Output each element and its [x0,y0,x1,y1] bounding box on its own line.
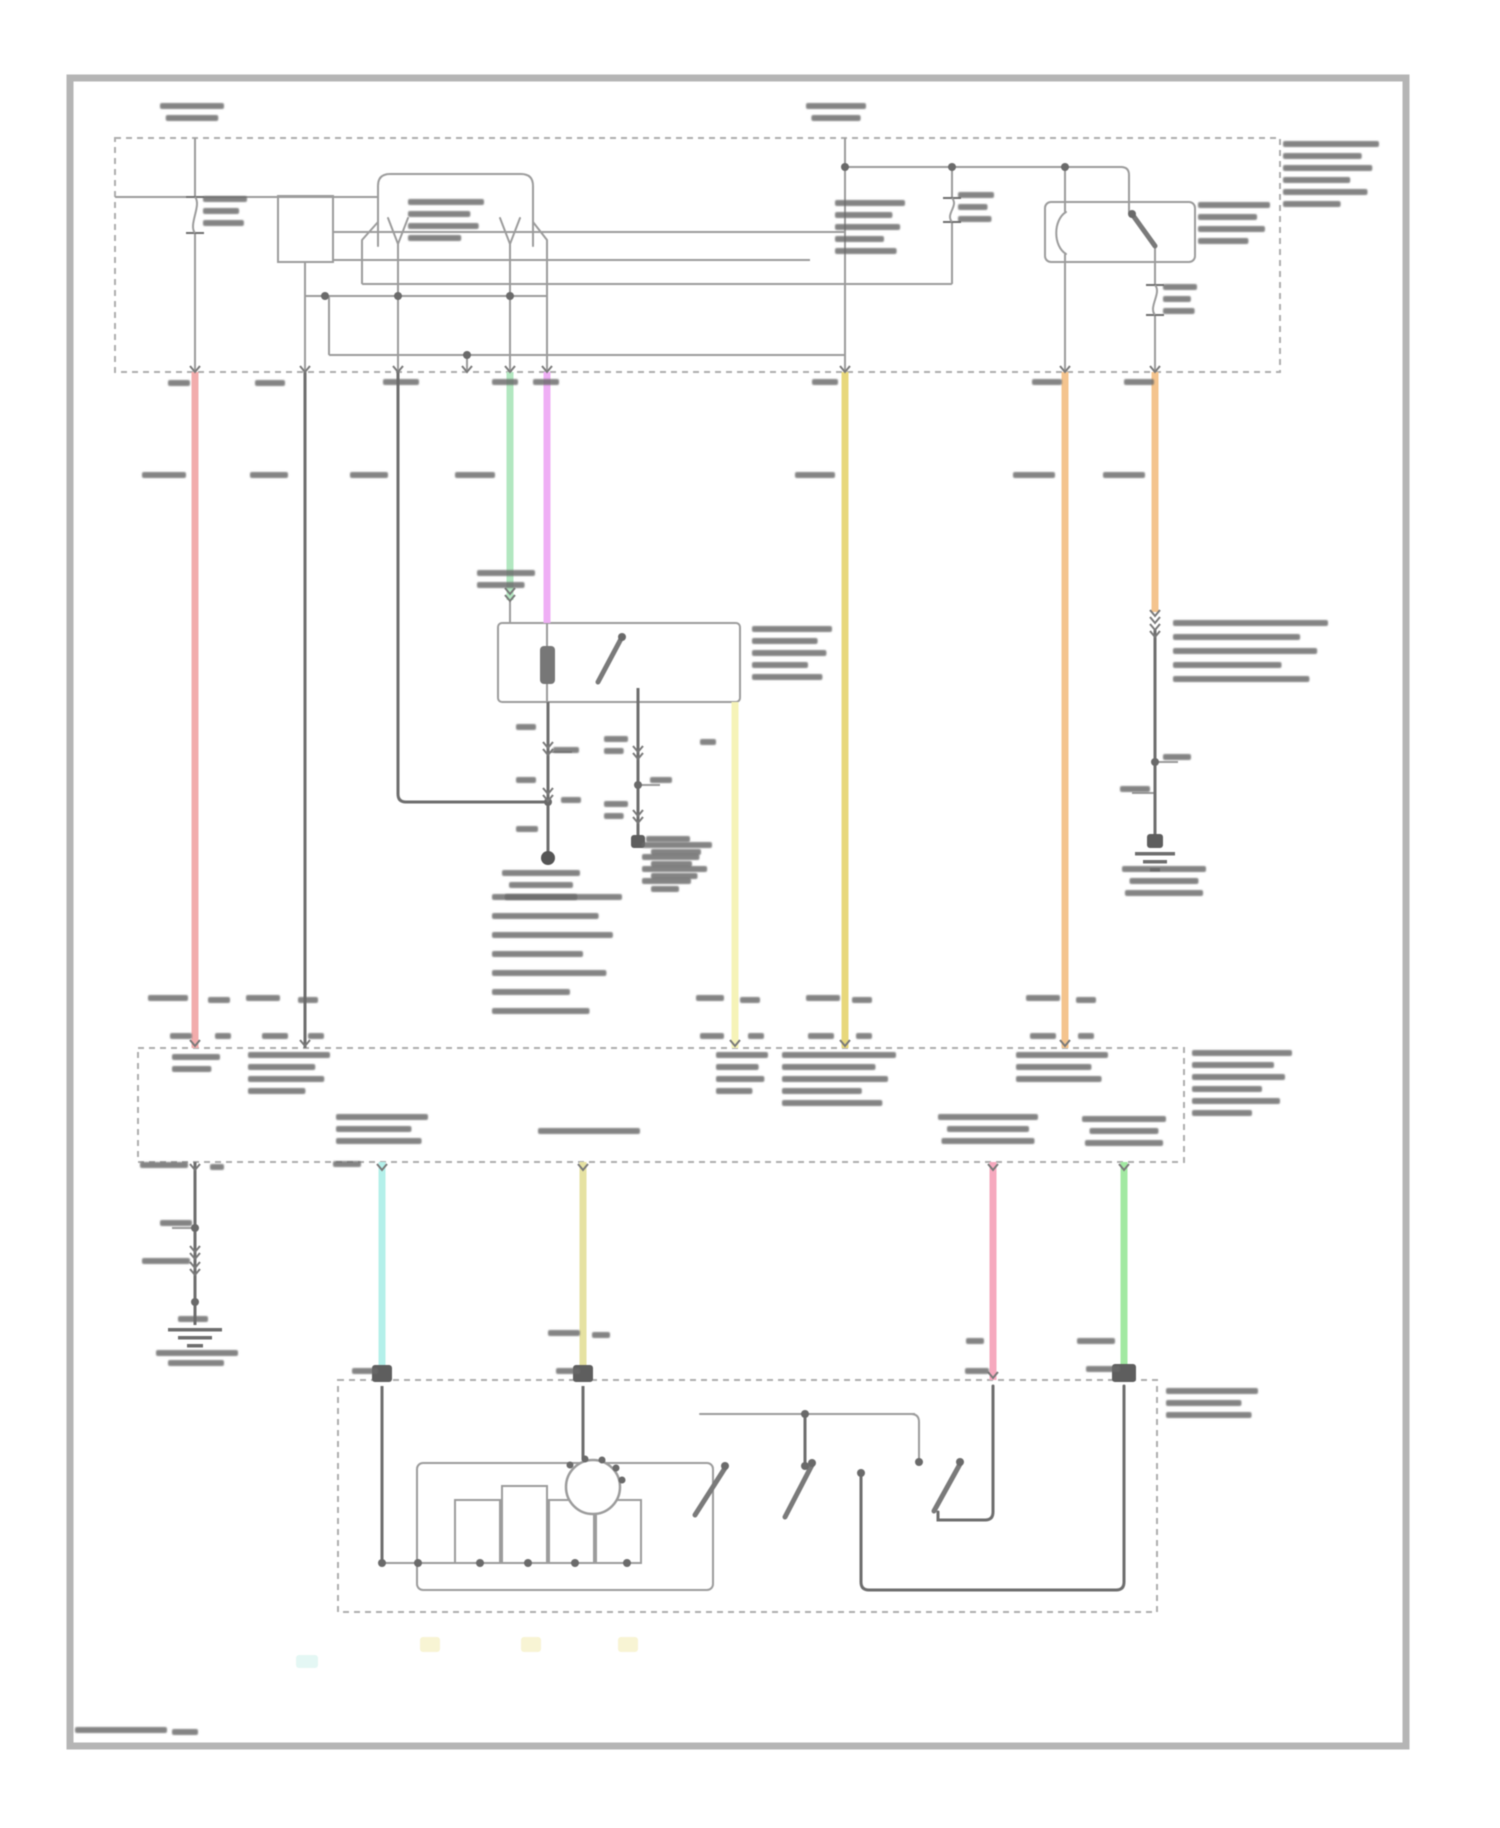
text-line [752,662,808,668]
text-line [1283,153,1362,159]
label-smear-51 [806,995,840,1001]
junction-dot-20 [618,633,626,641]
text-line [509,882,573,888]
label-smear-63 [1030,1033,1056,1039]
relay2-label [1198,202,1270,244]
text-line [748,1033,764,1039]
junction-dot-6 [463,351,471,359]
text-line [1166,1412,1252,1418]
text-line [1198,238,1248,244]
label-smear-11 [383,379,419,385]
hot-label-2 [806,103,866,121]
text-line [492,989,570,995]
fuse-3-symbol [1153,285,1157,315]
text-line [604,813,624,819]
label-smear-83 [142,1258,190,1264]
motor-box-label [752,626,832,680]
relay1-label [408,199,484,241]
rotary-switch [566,1460,620,1514]
text-line [806,103,866,109]
wireA-corner [398,372,548,802]
label-smear-10 [255,380,285,386]
text-line [752,638,818,644]
label-smear-77 [333,1161,361,1167]
text-line [408,211,470,217]
wiring-diagram-canvas [0,0,1500,1828]
label-smear-24 [477,570,535,588]
text-line [740,997,760,1003]
text-line [298,997,318,1003]
text-line [1192,1050,1292,1056]
label-smear-28 [516,777,536,783]
label-smear-22 [1013,472,1055,478]
label-smear-67 [716,1052,768,1094]
label-smear-55 [170,1033,192,1039]
label-smear-19 [350,472,388,478]
junction-dot-24 [857,1469,865,1477]
junction-dot-23 [956,1458,964,1466]
text-line [646,836,690,842]
label-smear-82 [160,1220,192,1226]
text-line [1173,620,1328,626]
junction-dot-8 [634,781,642,789]
text-line [248,1064,315,1070]
switchbox-label [1166,1388,1258,1418]
text-line [1173,662,1282,668]
text-line [262,1033,288,1039]
text-line [246,995,280,1001]
text-line [942,1138,1035,1144]
text-line [604,801,628,807]
label-smear-12 [492,379,518,385]
relay2-blade [1132,214,1155,246]
text-line [1130,878,1199,884]
label-smear-90 [965,1368,989,1374]
motor-switch-blade [598,637,622,682]
text-line [248,1076,324,1082]
text-line [696,995,724,1001]
text-line [1192,1074,1285,1080]
label-smear-56 [215,1033,231,1039]
text-line [958,204,988,210]
coil-symbol [540,646,555,684]
text-line [752,650,826,656]
junction-dot-17 [571,1559,579,1567]
tint-0 [420,1637,440,1652]
switch-corner [700,1414,919,1460]
label-smear-27 [553,747,579,753]
junction-dot-14 [414,1559,422,1567]
text-line [1077,1338,1115,1344]
label-smear-53 [1026,995,1060,1001]
switch-blade-3 [934,1464,960,1511]
text-line [1163,296,1191,302]
text-line [642,866,707,872]
rotary-contact-dot-4 [619,1477,626,1484]
junction-dot-13 [378,1559,386,1567]
ground-left-symbol [187,1344,203,1348]
text-line [492,1008,590,1014]
text-line [782,1100,882,1106]
text-line [208,997,230,1003]
text-line [592,1332,610,1338]
label-smear-14 [812,379,838,385]
label-smear-40 [1163,754,1191,760]
junction-dot-26 [915,1458,923,1466]
label-smear-62 [856,1033,872,1039]
text-line [336,1138,422,1144]
text-line [651,886,679,892]
text-line [492,913,599,919]
text-line [958,192,994,198]
text-line [604,748,624,754]
text-line [752,674,822,680]
label-smear-78 [548,1330,580,1336]
label-smear-71 [538,1128,640,1134]
text-line [808,1033,834,1039]
relay2-coil [1056,212,1066,254]
junction-dot-3 [321,292,329,300]
text-line [782,1064,875,1070]
text-line [604,736,628,742]
text-line [1283,189,1367,195]
text-line [492,970,606,976]
label-smear-15 [1032,379,1062,385]
text-line [716,1088,752,1094]
text-line [811,115,860,121]
label-smear-61 [808,1033,834,1039]
text-line [248,1052,330,1058]
text-line [1016,1076,1102,1082]
hot-label-1 [160,103,224,121]
text-line [160,1220,192,1226]
text-line [255,380,285,386]
text-line [700,1033,724,1039]
pink-inner-path [938,1386,993,1520]
text-line [502,870,580,876]
text-line [812,379,838,385]
fuse2-label [958,192,994,222]
label-smear-65 [172,1054,220,1072]
label-smear-60 [748,1033,764,1039]
label-smear-30 [516,826,538,832]
label-smear-66 [248,1052,330,1094]
text-line [1283,177,1350,183]
text-line [1173,676,1309,682]
text-line [1163,284,1197,290]
text-line [492,894,622,900]
label-smear-32 [604,736,628,754]
label-smear-91 [1086,1366,1120,1372]
text-line [533,379,559,385]
text-line [492,379,518,385]
ground-left-label [156,1350,238,1356]
label-smear-68 [782,1052,896,1106]
inner-switch-box [417,1463,713,1590]
text-line [1283,141,1379,147]
label-smear-81 [1077,1338,1115,1344]
text-line [835,212,892,218]
text-line [782,1088,862,1094]
ground-left-symbol [178,1336,212,1340]
text-line [782,1052,896,1058]
fuse-2-symbol [950,198,954,222]
text-line [1198,202,1270,208]
text-line [1192,1062,1274,1068]
text-line [516,826,538,832]
label-smear-73 [1082,1116,1166,1146]
ground-left-symbol [168,1328,222,1332]
text-line [383,379,419,385]
text-line [1163,308,1195,314]
text-line [958,216,991,222]
splice-dot [541,851,555,865]
fuse3-label [1163,284,1197,314]
text-line [1026,995,1060,1001]
text-line [642,878,691,884]
fuse1-label [203,196,247,226]
text-line [716,1052,768,1058]
text-line [561,797,581,803]
text-line [516,777,536,783]
junction-dot-19 [1128,210,1136,218]
label-smear-26 [516,724,536,730]
fuse-block-box [115,138,1280,372]
text-line [1192,1110,1252,1116]
text-line [556,1368,580,1374]
text-line [170,1033,192,1039]
text-line [203,196,247,202]
label-smear-45 [148,995,188,1001]
junction-dot-1 [948,163,956,171]
label-smear-47 [246,995,280,1001]
text-line [856,1033,872,1039]
text-line [1030,1033,1056,1039]
ground-right-symbol [1143,860,1167,864]
label-smear-48 [298,997,318,1003]
text-line [642,842,712,848]
rotary-contact-dot-2 [599,1457,606,1464]
junction-dot-10 [191,1224,199,1232]
text-line [1166,1388,1258,1394]
text-line [1078,1033,1094,1039]
text-line [650,777,672,783]
label-smear-57 [262,1033,288,1039]
label-smear-13 [533,379,559,385]
text-line [408,199,484,205]
text-line [700,739,716,745]
text-line [172,1729,198,1735]
rotary-contact-dot-0 [567,1462,574,1469]
text-line [835,236,884,242]
junction-dot-4 [394,292,402,300]
text-line [1016,1052,1108,1058]
text-line [1122,866,1206,872]
text-line [140,1162,188,1168]
text-line [1082,1116,1166,1122]
text-line [215,1033,231,1039]
switch-blade-2 [785,1465,812,1517]
text-line [716,1064,759,1070]
junction-dot-22 [808,1459,816,1467]
label-smear-79 [592,1332,610,1338]
text-line [350,472,388,478]
label-smear-54 [1076,997,1096,1003]
label-smear-20 [455,472,495,478]
text-line [1032,379,1062,385]
text-line [716,1076,764,1082]
text-line [492,951,583,957]
text-line [492,932,613,938]
tint-3 [296,1655,318,1668]
text-line [835,200,905,206]
module-right-label [1192,1050,1292,1116]
text-line [336,1126,411,1132]
text-line [1283,165,1372,171]
text-line [642,854,699,860]
junction-dot-5 [506,292,514,300]
label-smear-69 [1016,1052,1108,1082]
text-line [1173,634,1300,640]
text-line [752,626,832,632]
junction-dot-11 [191,1298,199,1306]
text-line [336,1114,428,1120]
fuse-1-symbol [193,197,197,233]
label-smear-52 [852,997,872,1003]
text-line [1198,226,1265,232]
text-line [1076,997,1096,1003]
label-smear-34 [604,801,628,819]
label-smear-80 [966,1338,984,1344]
text-line [548,1330,580,1336]
label-smear-9 [168,380,190,386]
text-line [248,1088,305,1094]
text-line [965,1368,989,1374]
label-smear-41 [1120,786,1150,792]
text-line [1192,1098,1280,1104]
label-smear-72 [938,1114,1038,1144]
label-smear-23 [1103,472,1145,478]
text-line [203,208,239,214]
text-line [795,472,835,478]
text-line [1090,1128,1159,1134]
label-smear-58 [308,1033,324,1039]
label-smear-17 [142,472,186,478]
label-smear-36 [651,849,701,879]
text-line [142,1258,190,1264]
text-line [250,472,288,478]
junction-dot-15 [476,1559,484,1567]
label-smear-88 [352,1368,378,1374]
footer-text [75,1727,167,1733]
label-smear-37 [651,886,679,892]
pinbox-1 [455,1500,500,1563]
ground2-pin [1147,834,1163,848]
text-line [516,724,536,730]
label-smear-35 [646,836,690,842]
text-line [166,115,218,121]
ground-right-symbol [1135,852,1175,856]
text-line [966,1338,984,1344]
text-line [172,1054,220,1060]
label-smear-46 [208,997,230,1003]
text-line [1173,648,1317,654]
text-line [148,995,188,1001]
junction-dot-21 [721,1462,729,1470]
junction-dot-16 [524,1559,532,1567]
junction-dot-12 [801,1410,809,1418]
label-smear-50 [740,997,760,1003]
label-smear-89 [556,1368,580,1374]
text-line [1120,786,1150,792]
text-line [308,1033,324,1039]
text-line [203,220,244,226]
label-smear-21 [795,472,835,478]
tint-1 [521,1637,541,1652]
module-paragraph [492,894,622,1014]
text-line [1283,201,1341,207]
pin-mark-10 [1150,617,1160,623]
text-line [1103,472,1145,478]
text-line [352,1368,378,1374]
label-smear-76 [210,1164,224,1170]
text-line [1124,379,1154,385]
label-smear-18 [250,472,288,478]
sub-box [278,196,333,262]
relay2-box [1045,202,1195,262]
text-line [477,570,535,576]
text-line [455,472,495,478]
text-line [1016,1064,1091,1070]
junction-dot-2 [1061,163,1069,171]
text-line [1085,1140,1163,1146]
pin-mark-11 [1150,624,1160,630]
label-smear-84 [178,1316,208,1322]
text-line [142,472,186,478]
label-smear-49 [696,995,724,1001]
junction-block-label [1173,620,1328,682]
text-line [835,248,897,254]
label-smear-93 [172,1729,198,1735]
text-line [782,1076,888,1082]
text-line [333,1161,361,1167]
label-smear-75 [140,1162,188,1168]
text-line [1125,890,1203,896]
text-line [806,995,840,1001]
text-line [938,1114,1038,1120]
wiring-diagram-page [0,0,1500,1828]
label-smear-38 [700,739,716,745]
text-line [408,223,479,229]
text-line [172,1066,211,1072]
text-line [477,582,525,588]
text-line [168,380,190,386]
text-line [1198,214,1257,220]
text-line [1163,754,1191,760]
text-line [852,997,872,1003]
junction-dot-25 [801,1462,809,1470]
rotary-contact-dot-1 [582,1456,589,1463]
tint-2 [618,1637,638,1652]
label-smear-16 [1124,379,1154,385]
text-line [408,235,461,241]
text-line [156,1350,238,1356]
text-line [168,1360,224,1366]
text-line [210,1164,224,1170]
text-line [947,1126,1029,1132]
fuseblock-title [1283,141,1379,207]
text-line [1166,1400,1241,1406]
